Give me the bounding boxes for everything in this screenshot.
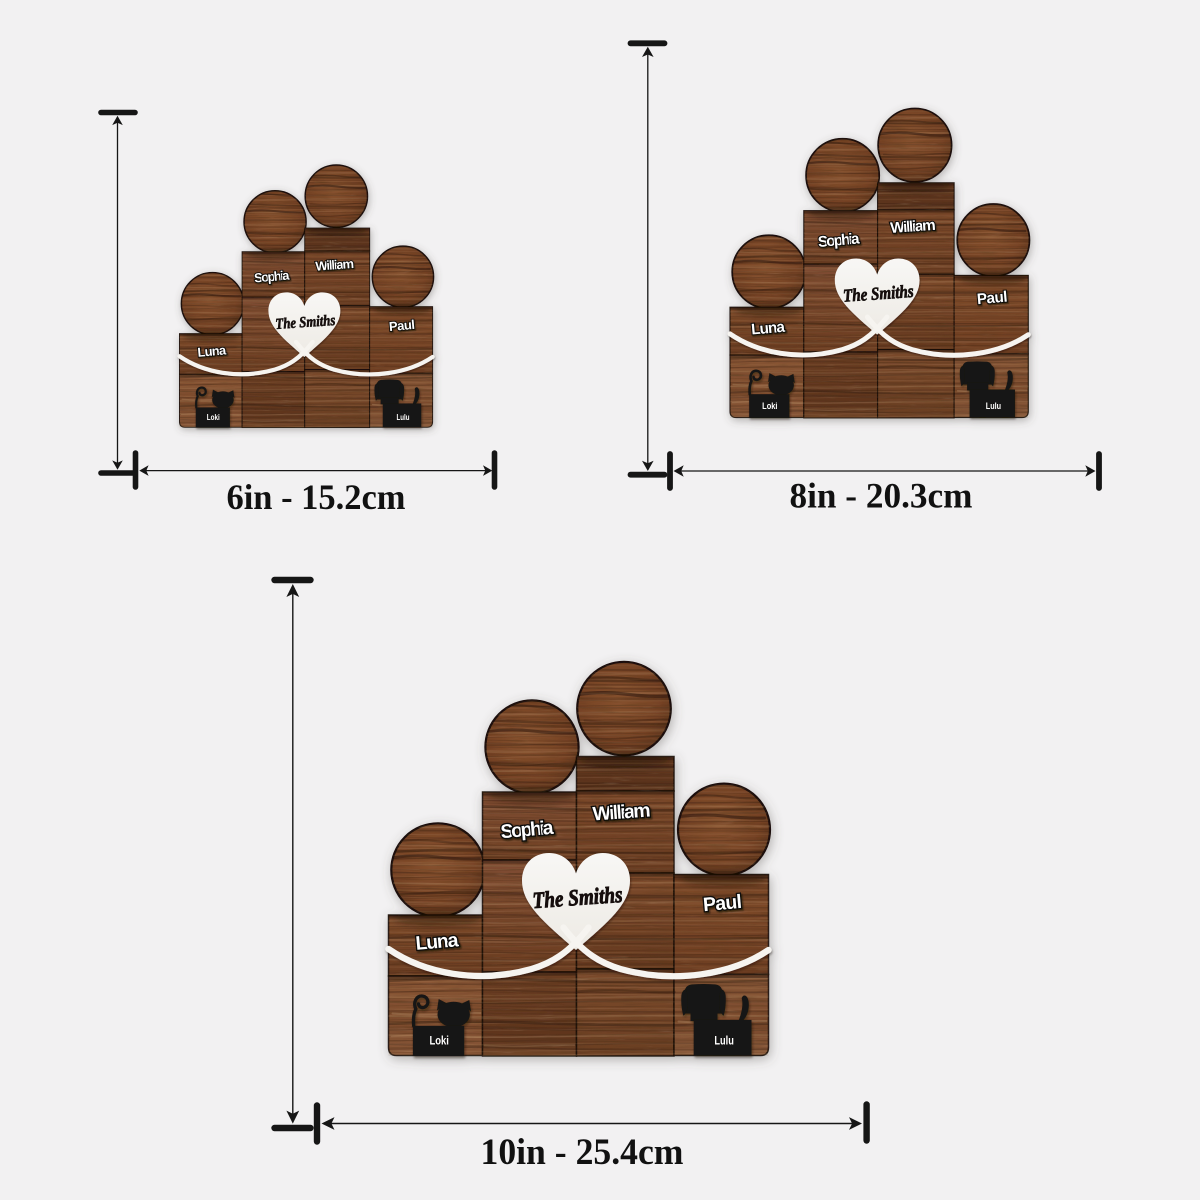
svg-text:8in - 20.3cm: 8in - 20.3cm xyxy=(790,476,973,516)
svg-text:10in - 25.4cm: 10in - 25.4cm xyxy=(481,1132,684,1173)
svg-text:6in - 15.2cm: 6in - 15.2cm xyxy=(227,477,406,517)
